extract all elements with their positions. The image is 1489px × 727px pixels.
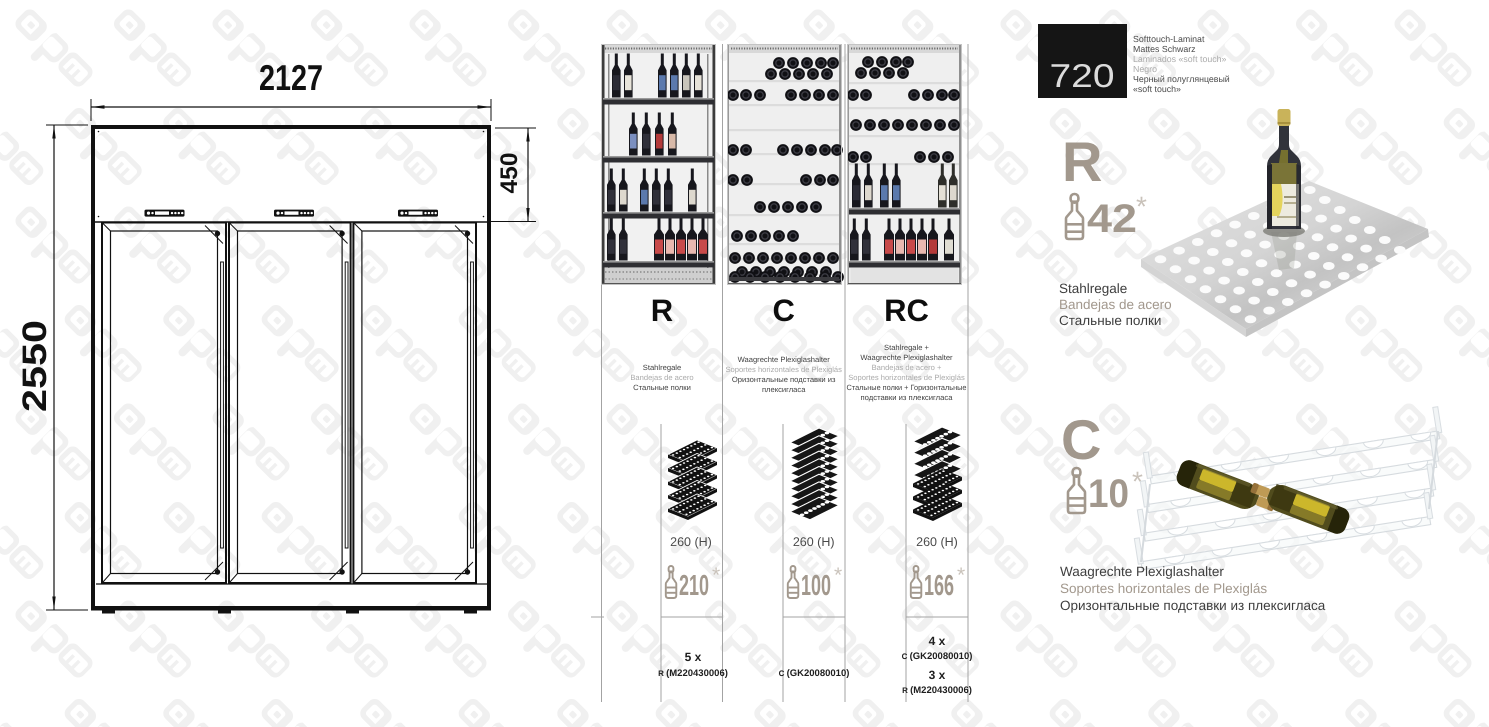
svg-text:Черный полуглянцевый: Черный полуглянцевый	[1133, 74, 1230, 84]
svg-text:Negro: Negro	[1133, 64, 1157, 74]
svg-text:Стальные полки + Горизонтальны: Стальные полки + Горизонтальные	[847, 383, 967, 392]
svg-text:260 (H): 260 (H)	[793, 535, 835, 549]
svg-text:4 x: 4 x	[929, 634, 946, 648]
svg-text:C (GK20080010): C (GK20080010)	[902, 651, 973, 662]
svg-text:100: 100	[801, 570, 831, 602]
svg-text:*: *	[1136, 191, 1147, 222]
svg-text:Stahlregale: Stahlregale	[643, 363, 681, 372]
svg-text:Laminados «soft touch»: Laminados «soft touch»	[1133, 54, 1227, 64]
svg-text:Оризонтальные подставки из: Оризонтальные подставки из	[732, 375, 836, 384]
svg-text:210: 210	[679, 570, 709, 602]
svg-text:RC: RC	[884, 293, 929, 328]
svg-text:2550: 2550	[16, 320, 54, 412]
svg-text:Waagrechte Plexiglashalter: Waagrechte Plexiglashalter	[860, 353, 953, 362]
svg-text:Стальные полки: Стальные полки	[633, 383, 691, 392]
svg-text:*: *	[957, 564, 965, 587]
svg-text:Оризонтальные подставки из пле: Оризонтальные подставки из плексигласа	[1060, 598, 1326, 613]
svg-text:Стальные полки: Стальные полки	[1059, 313, 1161, 328]
svg-text:*: *	[712, 564, 720, 587]
svg-text:Stahlregale: Stahlregale	[1059, 281, 1127, 296]
svg-text:Bandejas de acero: Bandejas de acero	[1059, 297, 1172, 312]
svg-text:*: *	[1132, 466, 1143, 497]
svg-text:260 (H): 260 (H)	[670, 535, 712, 549]
svg-text:Waagrechte Plexiglashalter: Waagrechte Plexiglashalter	[738, 355, 831, 364]
svg-text:260 (H): 260 (H)	[916, 535, 958, 549]
svg-text:подставки из плексигласа: подставки из плексигласа	[861, 393, 954, 402]
svg-text:«soft touch»: «soft touch»	[1133, 84, 1181, 94]
svg-text:Waagrechte Plexiglashalter: Waagrechte Plexiglashalter	[1060, 564, 1224, 579]
svg-text:10: 10	[1088, 472, 1129, 516]
svg-text:Bandejas de acero +: Bandejas de acero +	[872, 363, 942, 372]
svg-text:5 x: 5 x	[685, 650, 702, 664]
svg-text:R (M220430006): R (M220430006)	[902, 685, 972, 696]
svg-text:плексигласа: плексигласа	[762, 385, 806, 394]
svg-text:Stahlregale +: Stahlregale +	[884, 343, 930, 352]
svg-text:720: 720	[1050, 57, 1115, 94]
svg-text:C (GK20080010): C (GK20080010)	[779, 668, 850, 679]
svg-text:2127: 2127	[259, 57, 323, 98]
svg-text:*: *	[834, 564, 842, 587]
svg-text:C: C	[1061, 408, 1101, 471]
svg-text:Soportes horizontales de Plexi: Soportes horizontales de Plexiglás	[725, 365, 842, 374]
svg-text:166: 166	[924, 570, 954, 602]
svg-text:3 x: 3 x	[929, 668, 946, 682]
svg-text:450: 450	[496, 153, 523, 194]
svg-text:R: R	[651, 293, 673, 328]
svg-text:C: C	[773, 293, 795, 328]
svg-text:Soportes horizontales de Plexi: Soportes horizontales de Plexiglás	[1060, 581, 1267, 596]
svg-text:Soportes horizontales de Plexi: Soportes horizontales de Plexiglás	[848, 373, 965, 382]
svg-text:R: R	[1062, 130, 1102, 193]
svg-text:Bandejas de acero: Bandejas de acero	[630, 373, 693, 382]
svg-text:R (M220430006): R (M220430006)	[658, 668, 728, 679]
svg-text:Mattes Schwarz: Mattes Schwarz	[1133, 44, 1196, 54]
svg-text:Softtouch-Laminat: Softtouch-Laminat	[1133, 34, 1205, 44]
svg-text:42: 42	[1087, 197, 1137, 241]
